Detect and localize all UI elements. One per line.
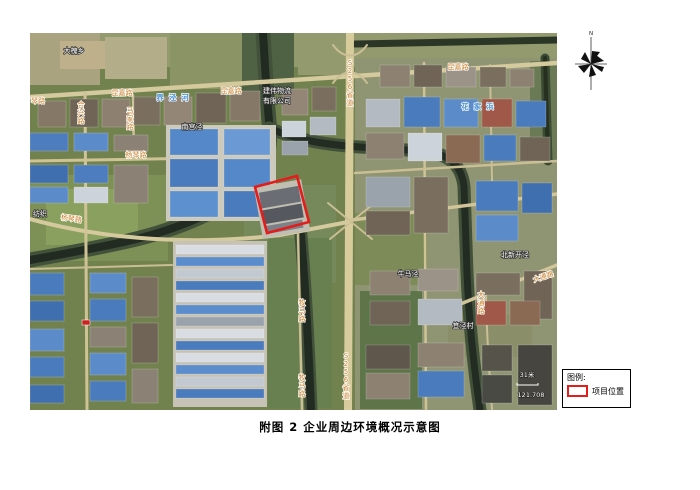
map-label: 杨琴路 <box>126 150 147 159</box>
map-label: 马家路 <box>127 107 134 131</box>
legend-item-project-location: 项目位置 <box>567 385 626 397</box>
map-label: 121.708 <box>518 391 545 399</box>
map-label: 有限公司 <box>263 96 291 105</box>
satellite-map-canvas: 大槐乡昆嘉路昆嘉路昆嘉路S256省道S256省道建伟物流有限公司南宫泾杨琴路杨琴… <box>30 33 557 410</box>
road-shield-marker <box>82 320 90 325</box>
map-label: 琴路 <box>31 96 45 105</box>
map-label: 大通路 <box>478 290 485 315</box>
legend-box: 图例: 项目位置 <box>562 369 631 408</box>
map-label: 界泾河 <box>156 92 194 102</box>
map-label: 北新开泾 <box>501 250 529 259</box>
map-label: 合兴路 <box>78 100 85 125</box>
map-label: 昆嘉路 <box>221 86 242 95</box>
satellite-map: 大槐乡昆嘉路昆嘉路昆嘉路S256省道S256省道建伟物流有限公司南宫泾杨琴路杨琴… <box>30 33 557 410</box>
compass-north-label: N <box>589 31 593 37</box>
map-label: 牧马路 <box>299 373 306 398</box>
legend-title: 图例: <box>567 373 626 382</box>
map-label: 建伟物流 <box>263 86 291 95</box>
map-label: 昆嘉路 <box>448 62 469 71</box>
map-label: 大槐乡 <box>64 46 85 55</box>
map-label: 31米 <box>520 370 535 379</box>
map-label: 昆嘉路 <box>112 88 133 97</box>
map-label: 南宫泾 <box>182 122 203 131</box>
map-label: 牧马路 <box>299 298 306 323</box>
map-label: 牛马泾 <box>398 269 419 278</box>
map-label: 纺织 <box>33 209 47 218</box>
figure-caption: 附图 2 企业周边环境概况示意图 <box>0 419 700 435</box>
map-label: 花家浜 <box>461 101 499 111</box>
compass-rose: N <box>573 28 613 94</box>
report-figure-page: 大槐乡昆嘉路昆嘉路昆嘉路S256省道S256省道建伟物流有限公司南宫泾杨琴路杨琴… <box>0 0 700 490</box>
project-site <box>254 176 310 239</box>
map-label: 笪泾村 <box>453 321 474 330</box>
project-location-swatch-icon <box>567 385 588 397</box>
legend-item-label: 项目位置 <box>592 386 624 397</box>
